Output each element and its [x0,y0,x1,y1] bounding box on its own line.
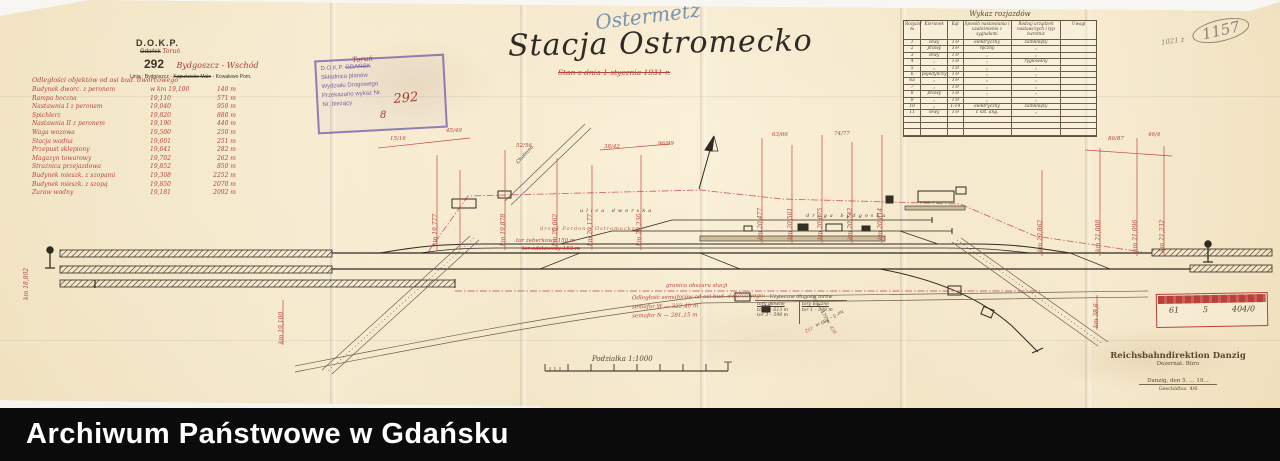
distance-name: Magazyn towarowy [32,155,150,162]
roads [295,124,1148,374]
turnout-row [904,129,1096,135]
map-annotation: 63/66 [772,132,788,138]
distance-km: 19,601 [150,138,196,145]
purple-stamp-org: D.O.K.P. [320,65,343,72]
track-length-side: tory boczne tor 1 – 588 m tor 4 – 479 m … [800,301,847,324]
distance-km: 19,500 [150,129,196,136]
dokp-number-row: 292 Bydgoszcz - Wschód [130,55,320,73]
distance-m: 2252 m [196,172,236,179]
dokp-office-new: Toruń [162,48,180,55]
track-length-table: Użyteczne długości torów tory główne tor… [755,295,847,324]
archive-note-prefix: 1021 z [1160,35,1185,47]
distance-km: 19,110 [150,95,196,102]
purple-stamp: D.O.K.P. GDAŃSK Składnica planów Wydział… [314,54,448,135]
map-annotation: droga Fordon – Ostromecko [540,227,636,233]
cell [921,129,948,135]
distance-m: 950 m [196,103,236,110]
distance-row: Rampa boczna 19,110 571 m [32,95,244,104]
distance-km: w km 19,100 [150,86,196,93]
dokp-route: Bydgoszcz - Wschód [176,61,258,70]
map-annotation: 96/99 [658,141,674,147]
distance-m: 571 m [196,95,236,102]
red-stamp-field1: 61 [1169,306,1179,315]
archive-name: Archiwum Państwowe w Gdańsku [26,418,509,451]
map-annotation: km 19,777 [433,214,440,246]
turnout-table-grid: Rozjazd № Kierunek Kąt Sposób nastawiani… [903,20,1097,137]
scale-label: Podziałka 1:1000 [592,355,653,363]
distance-m: 880 m [196,112,236,119]
map-annotation: Toruń [352,56,373,65]
distance-m: 850 m [196,163,236,170]
cell [948,129,963,135]
col-sposob: Sposób nastawiania i uzależnienie z sygn… [964,21,1012,40]
distance-m: 440 m [196,120,236,127]
rbd-title: Reichsbahndirektion Danzig [1096,351,1260,361]
distance-row: Budynek mieszk. z szopami 19,308 2252 m [32,172,244,181]
archive-footer-bar: Archiwum Państwowe w Gdańsku [0,408,1280,461]
distance-km: 19,641 [150,146,196,153]
cell [904,129,921,135]
red-stamp-field2: 5 [1203,305,1208,314]
scan-viewport: D.O.K.P. Gdańsk Toruń 292 Bydgoszcz - Ws… [0,0,1280,461]
distance-name: Budynek dworc. z peronem [32,86,150,93]
red-stamp-field3: 404/0 [1232,304,1255,313]
distance-name: Strażnica przejazdowa [32,163,150,170]
distance-m: 262 m [196,155,236,162]
distance-km: 19,040 [150,103,196,110]
distance-m: 282 m [196,146,236,153]
track-length-main: tory główne tor 2 – 613 m tor 3 – 598 m [755,301,800,324]
distance-m: 250 m [196,129,236,136]
purple-stamp-city: GDAŃSK [345,64,371,71]
map-annotation: km 19,878 [501,214,508,246]
cell [1061,129,1096,135]
turnout-table-head: Rozjazd № Kierunek Kąt Sposób nastawiani… [904,21,1096,40]
distance-km: 19,181 [150,189,196,196]
distance-name: Nastawnia II z peronem [32,120,150,127]
distance-list: Odległości objektów od osi bud. dworcowe… [32,76,244,198]
distance-km: 19,702 [150,155,196,162]
track-length-value: tor 3 – 598 m [757,313,788,318]
map-annotation: droga bydgoska [806,214,888,220]
distance-m: 251 m [196,138,236,145]
track-length-row: tor 3 – 598 m [757,313,797,318]
rbd-line2: Dezernat. Büro [1096,361,1260,367]
map-annotation: km 20,862 [1038,220,1045,252]
distance-row: Żuraw wodny 19,181 2092 m [32,189,244,198]
map-annotation: 45/49 [446,128,462,134]
map-annotation: km 18,892 [24,268,31,300]
map-annotation: km 21,096 [1133,220,1140,252]
map-annotation: 86/87 [1108,136,1124,142]
distance-name: Spichlerz [32,112,150,119]
col-kat: Kąt [948,21,963,40]
col-uwagi: Uwagi [1061,21,1096,40]
distance-name: Przepust sklepiony [32,146,150,153]
distance-m: 140 m [196,86,236,93]
map-annotation: granica obszaru stacji [666,283,727,289]
map-annotation: 292 [393,91,419,107]
dokp-number: 292 [144,57,164,71]
track-length-colB: tory boczne [802,302,845,307]
distance-name: Stacja wodna [32,138,150,145]
distance-row: Magazyn towarowy 19,702 262 m [32,155,244,164]
map-annotation: km 20,477 [758,208,765,240]
reichsbahn-block: Reichsbahndirektion Danzig Dezernat. Bür… [1096,351,1260,392]
distance-row: Spichlerz 19,820 880 m [32,112,244,121]
distance-name: Budynek mieszk. z szopami [32,172,150,179]
distance-km: 19,852 [150,163,196,170]
track-length-rowsA: tor 2 – 613 m tor 3 – 598 m [757,308,797,318]
track-length-colA: tory główne [757,302,797,307]
distance-m: 2070 m [196,181,236,188]
cell [964,129,1012,135]
distance-rows: Budynek dworc. z peronem w km 19,100 140… [32,86,244,198]
distance-row: Budynek dworc. z peronem w km 19,100 140… [32,86,244,95]
turnout-rows: 1 lewy 1:9 elektryczny zamknięty 2 prawy… [904,40,1096,136]
distance-row: Budynek mieszk. z szopą 19,850 2070 m [32,181,244,190]
distance-name: Rampa boczna [32,95,150,102]
distance-list-header: Odległości objektów od osi bud. dworcowe… [32,76,244,84]
distance-name: Nastawnia I z peronem [32,103,150,110]
map-annotation: ulica dworska [580,209,654,215]
distance-row: Stacja wodna 19,601 251 m [32,138,244,147]
plan-sheet: D.O.K.P. Gdańsk Toruń 292 Bydgoszcz - Ws… [0,0,1280,410]
col-rozjazd: Rozjazd № [904,21,921,40]
map-annotation: km 38,6 [1094,303,1101,328]
distance-row: Waga wozowa 19,500 250 m [32,129,244,138]
distance-name: Żuraw wodny [32,189,150,196]
col-rodzaj: Rodzaj urządzeń nastawczych i typ zwrotn… [1012,21,1062,40]
map-annotation: 8 [380,110,386,121]
distance-km: 19,820 [150,112,196,119]
map-annotation: 74/77 [834,131,850,137]
distance-m: 2092 m [196,189,236,196]
distance-name: Waga wozowa [32,129,150,136]
map-annotation: 15/16 [390,136,406,142]
col-kierunek: Kierunek [921,21,948,40]
red-stamp-header-bar [1158,294,1266,304]
map-annotation: 38/42 [604,144,620,150]
track-length-rowsB: tor 1 – 588 m tor 4 – 479 m 420 tor 5 – … [802,308,845,323]
turnout-table: Wykaz rozjazdów Rozjazd № Kierunek Kąt S… [903,10,1097,137]
distance-row: Nastawnia I z peronem 19,040 950 m [32,103,244,112]
map-annotation: km 20,236 [637,214,644,246]
distance-km: 19,308 [150,172,196,179]
red-stamp-fields: 61 5 404/0 [1157,304,1267,315]
title-subtitle: Stan z dnia 1 stycznia 1931 r. [558,68,670,77]
map-annotation: km 21,008 [1096,220,1103,252]
dokp-org: D.O.K.P. [136,38,320,48]
north-arrow [699,136,718,189]
rbd-date-line: Danzig, den 5. … 19… [1139,378,1217,385]
distance-name: Budynek mieszk. z szopą [32,181,150,188]
map-annotation: km 19,100 [279,312,286,344]
map-annotation: tor odstawczy 150 m [522,246,580,252]
rbd-ref-line: Geschäftsz. 4/6 [1096,386,1260,392]
page-title: Stacja Ostromecko [508,23,813,63]
distance-km: 19,850 [150,181,196,188]
scale-bar [545,362,732,371]
distance-row: Przepust sklepiony 19,641 282 m [32,146,244,155]
map-annotation: tor żeberkowy 150 m [516,238,575,244]
map-annotation: 46/4 [1148,132,1160,138]
map-annotation: km 21,232 [1160,220,1167,252]
map-annotation: km 20,561 [788,208,795,240]
red-archive-stamp: 61 5 404/0 [1156,292,1269,328]
turnout-table-title: Wykaz rozjazdów [903,10,1097,18]
dokp-office: Gdańsk Toruń [140,48,320,55]
distance-row: Strażnica przejazdowa 19,852 850 m [32,163,244,172]
distance-row: Nastawnia II z peronem 19,190 440 m [32,120,244,129]
distance-km: 19,190 [150,120,196,127]
dokp-header: D.O.K.P. Gdańsk Toruń 292 Bydgoszcz - Ws… [130,38,320,80]
cell [1012,129,1062,135]
